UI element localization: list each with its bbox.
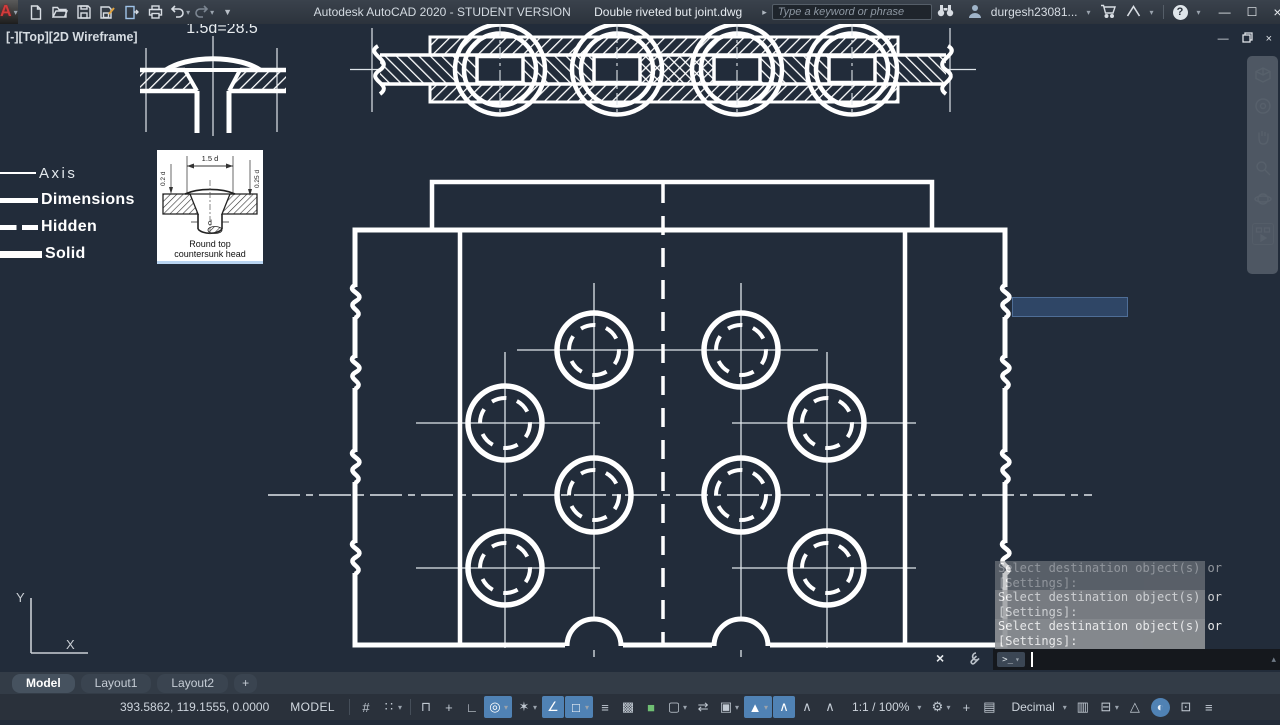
document-title: Double riveted but joint.dwg (594, 5, 742, 19)
clean-screen-icon[interactable]: ⊡ (1175, 696, 1197, 718)
model-space-button[interactable]: MODEL (281, 696, 344, 718)
legend-item-dimensions: Dimensions (0, 191, 135, 209)
legend-label: Solid (45, 245, 86, 263)
annotation-scale-value-dropdown-icon[interactable]: ▾ (917, 703, 921, 712)
app-store-cart-icon[interactable] (1100, 4, 1117, 21)
snap-mode-icon[interactable]: ∷▾ (378, 696, 406, 718)
new-layout-tab[interactable]: + (234, 674, 257, 693)
infer-constraints-icon[interactable]: ⊓ (415, 696, 437, 718)
command-cursor (1031, 652, 1033, 667)
print-icon[interactable] (144, 1, 168, 23)
window-close-icon[interactable]: × (1273, 4, 1280, 20)
legend-linetype-sample (0, 172, 36, 174)
3d-object-snap-icon[interactable]: ▢▾ (663, 696, 691, 718)
dwg-minimize-icon[interactable]: — (1218, 33, 1229, 45)
navigation-wheel-icon[interactable] (1252, 95, 1274, 117)
titlebar-divider (1163, 5, 1164, 19)
app-title: Autodesk AutoCAD 2020 - STUDENT VERSION (314, 5, 571, 19)
annotation-visibility-dropdown-icon[interactable]: ▾ (764, 703, 768, 712)
window-minimize-icon[interactable]: — (1219, 5, 1231, 19)
transparency-icon[interactable]: ▩ (617, 696, 639, 718)
lock-ui-dropdown-icon[interactable]: ▾ (1115, 703, 1119, 712)
save-icon[interactable] (72, 1, 96, 23)
autocad-logo-icon: A (0, 4, 12, 20)
title-bar: A▾ ▾ ▾ ▼ Autodesk AutoCAD 2020 - STUDENT… (0, 0, 1280, 24)
help-icon[interactable]: ? (1173, 5, 1188, 20)
polar-tracking-icon[interactable]: ◎▾ (484, 696, 512, 718)
autotrack-tooltip (1012, 297, 1128, 317)
orbit-icon[interactable] (1252, 188, 1274, 210)
command-expand-icon[interactable]: ▴ (1271, 654, 1276, 665)
annotation-scale-value[interactable]: 1:1 / 100%▾ (842, 696, 925, 718)
legend-linetype-sample (0, 198, 38, 203)
osnap-tracking-icon[interactable]: ∠ (542, 696, 564, 718)
statusbar-separator (410, 699, 411, 715)
legend-linetype-sample (0, 225, 38, 230)
annotation-del-scale-icon[interactable]: ∧ (819, 696, 841, 718)
units-value[interactable]: Decimal▾ (1001, 696, 1070, 718)
annotation-scale-sync-icon[interactable]: ▣▾ (715, 696, 743, 718)
units-icon[interactable]: ▤ (978, 696, 1000, 718)
polar-tracking-dropdown-icon[interactable]: ▾ (504, 703, 508, 712)
tab-model[interactable]: Model (12, 674, 75, 693)
rivet-reference-image: 1.5 d 0.2 d 0.25 d d Round top countersu… (157, 150, 263, 264)
inset-dim-right: 0.25 d (254, 170, 261, 188)
application-menu-button[interactable]: A▾ (0, 0, 18, 24)
grid-icon[interactable]: # (355, 696, 377, 718)
3d-object-snap-dropdown-icon[interactable]: ▾ (683, 703, 687, 712)
ucs-x-label: X (66, 637, 75, 652)
tab-layout2[interactable]: Layout2 (157, 674, 228, 693)
command-history-line: Select destination object(s) or (995, 619, 1205, 634)
lineweight-icon[interactable]: ≡ (594, 696, 616, 718)
annotation-monitor-icon[interactable]: + (955, 696, 977, 718)
legend-item-hidden: Hidden (0, 218, 97, 236)
window-title: Autodesk AutoCAD 2020 - STUDENT VERSION … (314, 5, 743, 19)
open-file-icon[interactable] (48, 1, 72, 23)
dynamic-input-icon[interactable]: + (438, 696, 460, 718)
isolate-objects-icon[interactable]: △ (1124, 696, 1146, 718)
autodesk-app-icon[interactable] (1126, 5, 1141, 20)
quick-properties-icon[interactable]: ▥ (1072, 696, 1094, 718)
search-binoculars-icon[interactable] (937, 4, 954, 20)
viewport-controls[interactable]: [-][Top][2D Wireframe] (6, 30, 138, 44)
redo-icon[interactable]: ▾ (192, 1, 216, 23)
ortho-mode-icon[interactable]: ∟ (461, 696, 483, 718)
help-dropdown-icon[interactable]: ▾ (1197, 8, 1201, 17)
legend-linetype-sample (0, 251, 42, 258)
command-prompt-icon[interactable]: >_▾ (997, 652, 1025, 667)
object-snap-dropdown-icon[interactable]: ▾ (585, 703, 589, 712)
lock-ui-icon[interactable]: ⊟▾ (1095, 696, 1123, 718)
layout-tab-bar: ModelLayout1Layout2+ (0, 672, 1280, 694)
search-collapse-icon[interactable]: ▸ (762, 7, 767, 18)
legend-item-axis: Axis (0, 164, 77, 182)
isodraft-dropdown-icon[interactable]: ▾ (533, 703, 537, 712)
showmotion-icon[interactable] (1252, 223, 1274, 245)
viewcube-icon[interactable] (1252, 64, 1274, 86)
signin-user-icon[interactable] (968, 4, 982, 21)
graphics-performance-icon[interactable]: ◐ (1147, 696, 1174, 718)
inset-dim-dia: d (208, 220, 212, 227)
search-input[interactable] (772, 4, 932, 20)
annotation-autoscale-icon[interactable]: ∧ (773, 696, 795, 718)
command-history-line: [Settings]: (995, 576, 1205, 591)
inset-caption: Round top countersunk head (157, 239, 263, 259)
inset-dim-top: 1.5 d (202, 154, 219, 163)
object-snap-icon[interactable]: □▾ (565, 696, 593, 718)
save-as-icon[interactable] (96, 1, 120, 23)
status-bar: 393.5862, 119.1555, 0.0000 MODEL #∷▾⊓+∟◎… (0, 694, 1280, 720)
ucs-y-label: Y (16, 590, 25, 605)
legend-label: Axis (39, 165, 77, 182)
snap-mode-dropdown-icon[interactable]: ▾ (398, 703, 402, 712)
commandline-customize-icon[interactable] (966, 651, 981, 671)
autodesk-dropdown-icon[interactable]: ▾ (1150, 8, 1154, 17)
annotation-scale-sync-dropdown-icon[interactable]: ▾ (735, 703, 739, 712)
command-input-bar[interactable]: >_▾ ▴ (993, 649, 1280, 670)
command-history-line: [Settings]: (995, 605, 1205, 620)
command-history: Select destination object(s) or[Settings… (995, 561, 1205, 649)
quick-access-toolbar: ▾ ▾ ▼ (24, 1, 240, 23)
tab-layout1[interactable]: Layout1 (81, 674, 152, 693)
undo-icon[interactable]: ▾ (168, 1, 192, 23)
inset-dim-left: 0.2 d (160, 171, 167, 186)
selection-cycling-icon[interactable]: ■ (640, 696, 662, 718)
workspace-icon[interactable]: ⚙▾ (926, 696, 954, 718)
annotation-add-scale-icon[interactable]: ∧ (796, 696, 818, 718)
command-history-line: [Settings]: (995, 634, 1205, 649)
new-file-icon[interactable] (24, 1, 48, 23)
account-dropdown-icon[interactable]: ▾ (1087, 8, 1091, 17)
navigation-bar[interactable] (1247, 56, 1278, 274)
legend-item-solid: Solid (0, 245, 86, 263)
pan-hand-icon[interactable] (1252, 126, 1274, 148)
plot-icon[interactable] (120, 1, 144, 23)
ucs-toggle-icon[interactable]: ⇄ (692, 696, 714, 718)
legend-label: Dimensions (41, 191, 135, 209)
annotation-visibility-icon[interactable]: ▲▾ (744, 696, 772, 718)
dwg-close-icon[interactable]: × (1266, 33, 1272, 45)
coordinates-display: 393.5862, 119.1555, 0.0000 (110, 700, 279, 714)
command-history-line: Select destination object(s) or (995, 590, 1205, 605)
workspace-dropdown-icon[interactable]: ▾ (946, 703, 950, 712)
zoom-icon[interactable] (1252, 157, 1274, 179)
window-maximize-icon[interactable]: ☐ (1247, 5, 1258, 19)
legend-label: Hidden (41, 218, 97, 236)
dwg-restore-icon[interactable] (1242, 32, 1253, 46)
command-history-line: Select destination object(s) or (995, 561, 1205, 576)
commandline-close-icon[interactable]: × (936, 650, 944, 666)
customize-icon[interactable]: ≡ (1198, 696, 1220, 718)
units-value-dropdown-icon[interactable]: ▾ (1063, 703, 1067, 712)
isodraft-icon[interactable]: ✶▾ (513, 696, 541, 718)
account-username[interactable]: durgesh23081... (991, 5, 1078, 19)
qat-customize-icon[interactable]: ▼ (216, 1, 240, 23)
